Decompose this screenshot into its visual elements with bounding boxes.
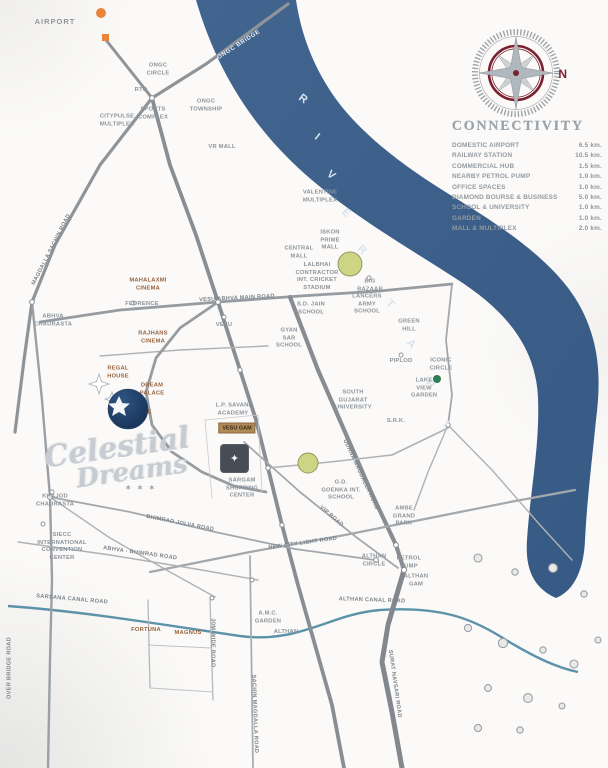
place-label-ambe-grand-park: AMBE GRAND PARK — [388, 506, 420, 529]
place-label-srk: S.R.K. — [387, 418, 405, 426]
connectivity-label: GARDEN — [452, 215, 481, 222]
canal — [8, 606, 578, 672]
compass-rose: N — [469, 27, 565, 119]
connectivity-row: MALL & MULTIPLEX 2.0 km. — [452, 225, 602, 232]
place-label-althan: ALTHAN — [274, 629, 299, 637]
place-label-green-hill: GREEN HILL — [396, 318, 422, 333]
compass-graphic — [469, 27, 565, 119]
airport-dot — [96, 8, 106, 18]
connectivity-label: COMMERCIAL HUB — [452, 163, 514, 170]
logo-stars: ✶ ✶ ✶ — [125, 484, 157, 492]
connectivity-row: NEARBY PETROL PUMP 1.0 km. — [452, 173, 602, 180]
place-label-rto: RTO — [135, 87, 148, 95]
place-label-airport: AIRPORT — [35, 17, 76, 27]
connectivity-value: 6.5 km. — [579, 142, 602, 149]
map-canvas: R I V E R T A P I ONGC BRIDGE AIRPORT ON… — [0, 0, 608, 768]
place-label-siecc-convention-center: SIECC INTERNATIONAL CONVENTION CENTER — [36, 532, 88, 562]
connectivity-label: NEARBY PETROL PUMP — [452, 173, 530, 180]
place-label-iskon-prime-mall: ISKON PRIME MALL — [312, 230, 348, 253]
place-label-sd-jain-school: S.D. JAIN SCHOOL — [296, 301, 326, 316]
connectivity-row: SCHOOL & UNIVERSITY 1.0 km. — [452, 204, 602, 211]
place-label-gd-goenka-school: G.D. GOENKA INT. SCHOOL — [321, 480, 361, 503]
connectivity-row: OFFICE SPACES 1.0 km. — [452, 184, 602, 191]
sparkle-star-icon — [89, 374, 109, 394]
place-label-citypulse-multiplex: CITYPULSE MULTIPLEX — [98, 113, 136, 128]
connectivity-label: OFFICE SPACES — [452, 184, 506, 191]
place-label-vesu: VESU — [216, 322, 233, 330]
project-logo: Celestial Dreams ✶ ✶ ✶ — [55, 372, 205, 502]
place-label-piplod: PIPLOD — [390, 358, 413, 366]
connectivity-label: MALL & MULTIPLEX — [452, 225, 517, 232]
place-label-magnus: MAGNUS — [175, 630, 202, 638]
north-label: N — [558, 67, 567, 81]
connectivity-panel: CONNECTIVITY DOMESTIC AIRPORT 6.5 km. RA… — [452, 119, 602, 236]
site-star-icon: ✦ — [230, 452, 239, 465]
connectivity-label: SCHOOL & UNIVERSITY — [452, 204, 530, 211]
connectivity-label: DOMESTIC AIRPORT — [452, 142, 519, 149]
place-label-althan-circle: ALTHAN CIRCLE — [359, 553, 389, 568]
connectivity-label: DIAMOND BOURSE & BUSINESS — [452, 194, 557, 201]
village-circles — [464, 554, 601, 733]
place-label-petrol-pump: PETROL PUMP — [395, 555, 423, 570]
place-label-central-mall: CENTRAL MALL — [284, 245, 314, 260]
connectivity-row: DIAMOND BOURSE & BUSINESS 5.0 km. — [452, 194, 602, 201]
place-label-cricket-stadium: LALBHAI CONTRACTOR INT. CRICKET STADIUM — [289, 262, 345, 292]
connectivity-value: 2.0 km. — [579, 225, 602, 232]
connectivity-value: 1.5 km. — [579, 163, 602, 170]
place-label-lp-savani-academy: L.P. SAVANI ACADEMY — [213, 402, 253, 417]
connectivity-label: RAILWAY STATION — [452, 152, 512, 159]
connectivity-value: 1.0 km. — [579, 215, 602, 222]
connectivity-value: 5.0 km. — [579, 194, 602, 201]
project-site-marker: ✦ — [221, 445, 248, 472]
connectivity-title: CONNECTIVITY — [452, 119, 602, 135]
vesu-gam-box: VESU GAM — [218, 423, 255, 434]
place-label-ongc-circle: ONGC CIRCLE — [143, 62, 173, 77]
place-label-florence: FLORENCE — [125, 301, 158, 309]
place-label-big-bazaar: BIG BAZAAR — [355, 278, 385, 293]
place-label-ongc-township: ONGC TOWNSHIP — [186, 98, 226, 113]
connectivity-value: 1.0 km. — [579, 184, 602, 191]
place-label-fortuna: FORTUNA — [131, 627, 161, 635]
connectivity-row: COMMERCIAL HUB 1.5 km. — [452, 163, 602, 170]
garden-green-area — [298, 453, 318, 473]
place-label-vr-mall: VR MALL — [208, 144, 235, 152]
place-label-abhva-chaurasta: ABHVA CHAURASTA — [34, 313, 72, 328]
connectivity-value: 10.5 km. — [575, 152, 602, 159]
connectivity-value: 1.0 km. — [579, 204, 602, 211]
place-label-sargam-shopping-center: SARGAM SHOPPING CENTER — [223, 478, 261, 501]
place-label-amc-garden: A.M.C. GARDEN — [254, 610, 282, 625]
place-label-lancers-army-school: LANCERS ARMY SCHOOL — [345, 294, 389, 317]
connectivity-value: 1.0 km. — [579, 173, 602, 180]
place-label-mahalaxmi-cinema: MAHALAXMI CINEMA — [129, 277, 167, 292]
road-label-over-bridge: OVER BRIDGE ROAD — [6, 637, 13, 699]
place-label-althan-gam: ALTHAN GAM — [402, 573, 430, 588]
place-label-sports-complex: SPORTS COMPLEX — [135, 106, 171, 121]
connectivity-row: GARDEN 1.0 km. — [452, 215, 602, 222]
place-label-rajhans-cinema: RAJHANS CINEMA — [137, 330, 169, 345]
connectivity-row: RAILWAY STATION 10.5 km. — [452, 152, 602, 159]
place-label-gyan-sar-school: GYAN SAR SCHOOL — [274, 328, 304, 351]
place-label-south-gujarat-university: SOUTH GUJARAT UNIVERSITY — [335, 390, 371, 413]
airport-square-marker — [102, 34, 109, 41]
place-label-iconic-circle: ICONIC CIRCLE — [427, 357, 455, 372]
connectivity-row: DOMESTIC AIRPORT 6.5 km. — [452, 142, 602, 149]
road-label-30m-wide: 30M WIDE ROAD — [208, 619, 215, 668]
place-label-valentine-multiplex: VALENTINE MULTIPLEX — [298, 189, 342, 204]
place-label-lake-view-garden: LAKE VIEW GARDEN — [411, 378, 437, 401]
